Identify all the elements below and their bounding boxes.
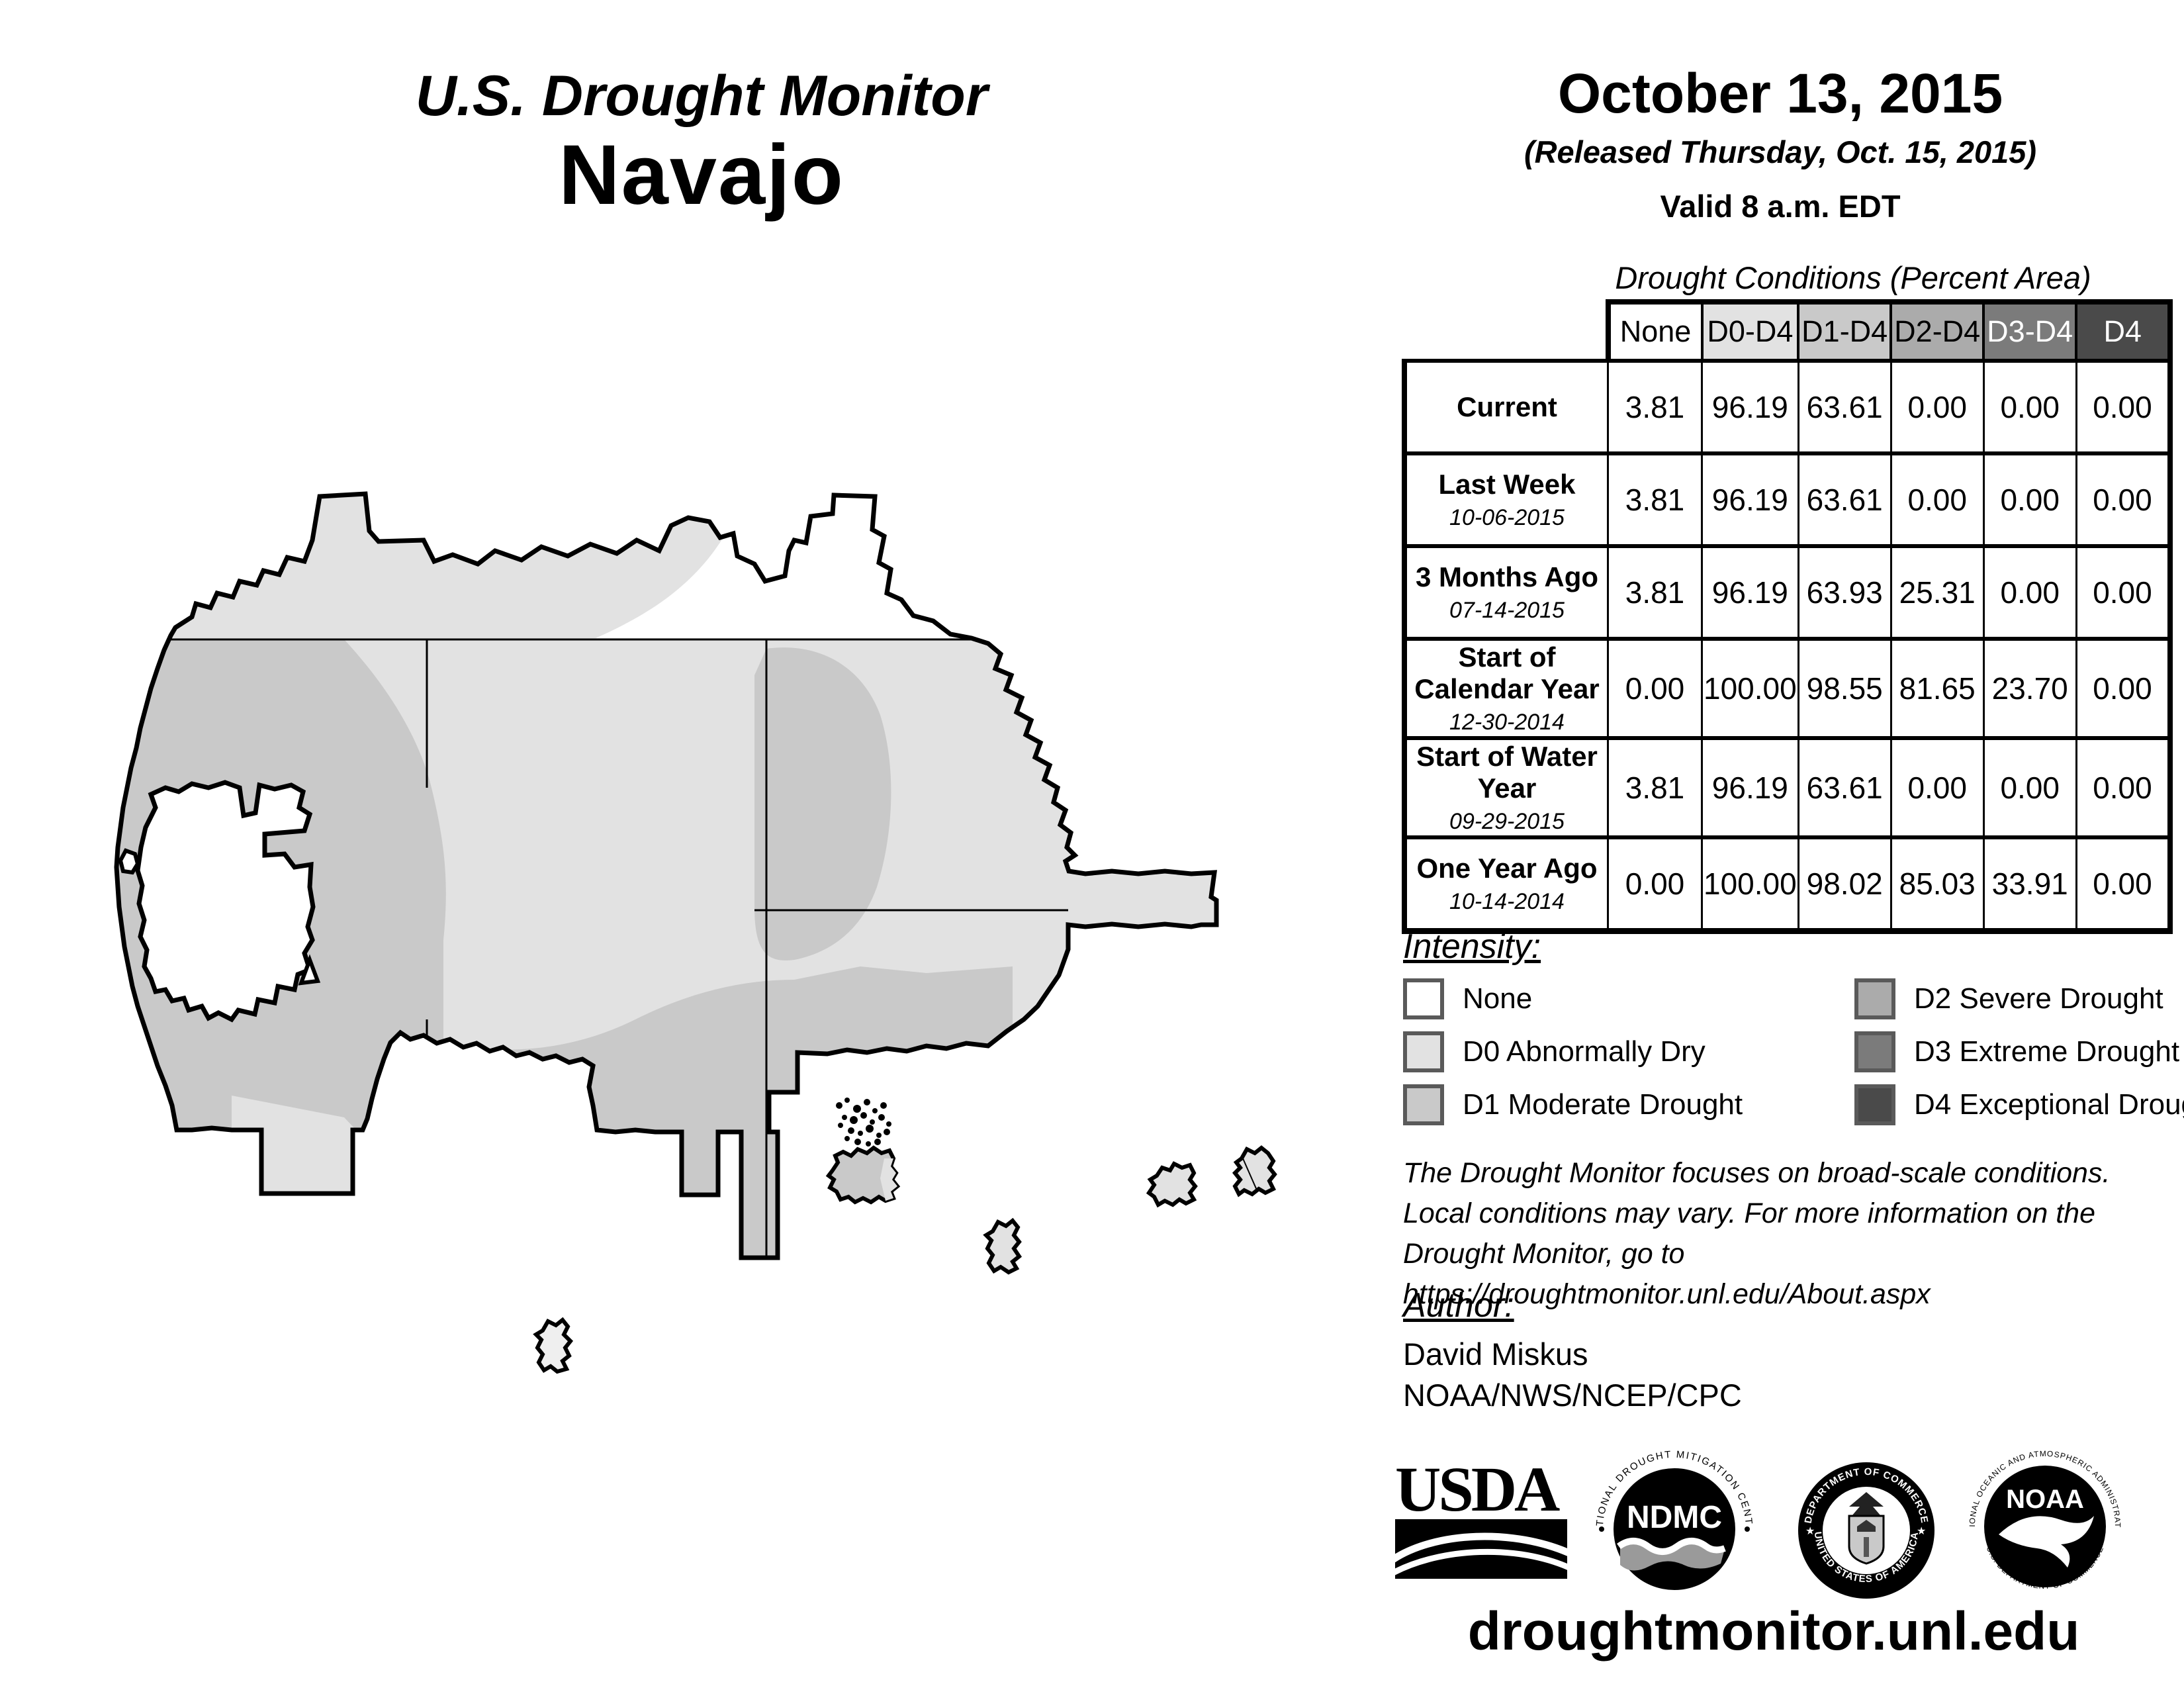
author-heading: Author: xyxy=(1403,1286,1514,1325)
valid-time: Valid 8 a.m. EDT xyxy=(1410,189,2151,224)
ndmc-center-text: NDMC xyxy=(1627,1500,1722,1535)
value-cell: 85.03 xyxy=(1891,837,1983,931)
value-cell: 3.81 xyxy=(1608,738,1702,837)
legend-swatch xyxy=(1854,1084,1895,1125)
legend-swatch xyxy=(1854,1031,1895,1072)
table-row: 3 Months Ago07-14-20153.8196.1963.9325.3… xyxy=(1404,546,2170,639)
legend-swatch xyxy=(1854,978,1895,1019)
region-title: Navajo xyxy=(165,129,1238,222)
value-cell: 0.00 xyxy=(2076,837,2170,931)
row-label: 3 Months Ago07-14-2015 xyxy=(1404,546,1608,639)
small-white-enclave xyxy=(120,851,138,872)
value-cell: 3.81 xyxy=(1608,546,1702,639)
value-cell: 100.00 xyxy=(1702,639,1799,738)
legend-swatch xyxy=(1403,1031,1444,1072)
commerce-lighthouse xyxy=(1864,1537,1869,1557)
value-cell: 0.00 xyxy=(1608,837,1702,931)
legend-label: None xyxy=(1463,982,1532,1015)
table-row: Start of Water Year09-29-20153.8196.1963… xyxy=(1404,738,2170,837)
legend-swatch xyxy=(1403,978,1444,1019)
east-parcel-2 xyxy=(1235,1148,1275,1194)
legend-item: D3 Extreme Drought xyxy=(1854,1031,2184,1072)
released-date: (Released Thursday, Oct. 15, 2015) xyxy=(1410,134,2151,170)
row-label: Start of Calendar Year12-30-2014 xyxy=(1404,639,1608,738)
value-cell: 96.19 xyxy=(1702,738,1799,837)
table-row: One Year Ago10-14-20140.00100.0098.0285.… xyxy=(1404,837,2170,931)
value-cell: 0.00 xyxy=(2076,361,2170,453)
value-cell: 0.00 xyxy=(1983,453,2076,546)
value-cell: 100.00 xyxy=(1702,837,1799,931)
value-cell: 0.00 xyxy=(2076,639,2170,738)
drought-conditions-table-wrap: NoneD0-D4D1-D4D2-D4D3-D4D4Current3.8196.… xyxy=(1402,299,2173,934)
value-cell: 0.00 xyxy=(2076,453,2170,546)
legend-label: D3 Extreme Drought xyxy=(1914,1035,2179,1068)
disclaimer: The Drought Monitor focuses on broad-sca… xyxy=(1403,1153,2184,1315)
table-row: Current3.8196.1963.610.000.000.00 xyxy=(1404,361,2170,453)
column-header-d4: D4 xyxy=(2076,302,2170,361)
ramah-dot-cluster xyxy=(836,1098,891,1147)
usda-logo-text: USDA xyxy=(1395,1460,1567,1519)
row-label: Last Week10-06-2015 xyxy=(1404,453,1608,546)
value-cell: 81.65 xyxy=(1891,639,1983,738)
author-org: NOAA/NWS/NCEP/CPC xyxy=(1403,1377,1742,1413)
value-cell: 33.91 xyxy=(1983,837,2076,931)
value-cell: 96.19 xyxy=(1702,546,1799,639)
drought-table: NoneD0-D4D1-D4D2-D4D3-D4D4Current3.8196.… xyxy=(1402,299,2173,934)
table-corner xyxy=(1404,302,1608,361)
disclaimer-line: The Drought Monitor focuses on broad-sca… xyxy=(1403,1153,2184,1194)
legend-column-2: D2 Severe DroughtD3 Extreme DroughtD4 Ex… xyxy=(1854,978,2184,1137)
value-cell: 25.31 xyxy=(1891,546,1983,639)
commerce-star-right: ★ xyxy=(1917,1526,1926,1537)
value-cell: 63.61 xyxy=(1798,738,1891,837)
title-block: U.S. Drought Monitor Navajo xyxy=(165,63,1238,222)
noaa-center-text: NOAA xyxy=(2006,1485,2084,1514)
value-cell: 3.81 xyxy=(1608,361,1702,453)
drought-monitor-report: U.S. Drought Monitor Navajo October 13, … xyxy=(0,0,2184,1688)
column-header-none: None xyxy=(1608,302,1702,361)
column-header-d0-d4: D0-D4 xyxy=(1702,302,1799,361)
value-cell: 0.00 xyxy=(1608,639,1702,738)
ndmc-logo: NATIONAL DROUGHT MITIGATION CENTER UNIVE… xyxy=(1588,1443,1760,1615)
legend-item: D0 Abnormally Dry xyxy=(1403,1031,1774,1072)
commerce-star-left: ★ xyxy=(1805,1526,1815,1537)
legend-item: D2 Severe Drought xyxy=(1854,978,2184,1019)
table-row: Start of Calendar Year12-30-20140.00100.… xyxy=(1404,639,2170,738)
commerce-logo: DEPARTMENT OF COMMERCE UNITED STATES OF … xyxy=(1786,1450,1947,1611)
satellite-parcels xyxy=(536,1098,1275,1372)
legend-item: D1 Moderate Drought xyxy=(1403,1084,1774,1125)
value-cell: 98.02 xyxy=(1798,837,1891,931)
legend-swatch xyxy=(1403,1084,1444,1125)
disclaimer-line: Drought Monitor, go to https://droughtmo… xyxy=(1403,1234,2184,1315)
alamo-parcel xyxy=(986,1221,1019,1272)
value-cell: 0.00 xyxy=(1983,361,2076,453)
value-cell: 0.00 xyxy=(2076,738,2170,837)
legend-label: D4 Exceptional Drought xyxy=(1914,1088,2184,1121)
date-block: October 13, 2015 (Released Thursday, Oct… xyxy=(1410,63,2151,224)
value-cell: 63.61 xyxy=(1798,453,1891,546)
value-cell: 3.81 xyxy=(1608,453,1702,546)
intensity-legend: NoneD0 Abnormally DryD1 Moderate Drought… xyxy=(1403,978,2171,1137)
east-parcel-1 xyxy=(1149,1164,1195,1205)
map-date: October 13, 2015 xyxy=(1410,63,2151,124)
value-cell: 0.00 xyxy=(1983,738,2076,837)
value-cell: 96.19 xyxy=(1702,361,1799,453)
legend-column-1: NoneD0 Abnormally DryD1 Moderate Drought xyxy=(1403,978,1774,1137)
legend-item: D4 Exceptional Drought xyxy=(1854,1084,2184,1125)
table-caption: Drought Conditions (Percent Area) xyxy=(1535,259,2171,296)
usda-swoosh-graphic xyxy=(1395,1519,1567,1579)
navajo-drought-map xyxy=(66,477,1324,1443)
usda-logo: USDA xyxy=(1395,1460,1567,1582)
column-header-d1-d4: D1-D4 xyxy=(1798,302,1891,361)
value-cell: 98.55 xyxy=(1798,639,1891,738)
row-label: One Year Ago10-14-2014 xyxy=(1404,837,1608,931)
value-cell: 0.00 xyxy=(1891,738,1983,837)
legend-label: D1 Moderate Drought xyxy=(1463,1088,1743,1121)
value-cell: 0.00 xyxy=(1891,453,1983,546)
value-cell: 0.00 xyxy=(2076,546,2170,639)
value-cell: 0.00 xyxy=(1983,546,2076,639)
disclaimer-line: Local conditions may vary. For more info… xyxy=(1403,1194,2184,1234)
legend-item: None xyxy=(1403,978,1774,1019)
table-row: Last Week10-06-20153.8196.1963.610.000.0… xyxy=(1404,453,2170,546)
noaa-logo: NATIONAL OCEANIC AND ATMOSPHERIC ADMINIS… xyxy=(1960,1442,2130,1611)
row-label: Current xyxy=(1404,361,1608,453)
author-name: David Miskus xyxy=(1403,1336,1588,1372)
column-header-d2-d4: D2-D4 xyxy=(1891,302,1983,361)
south-small-parcel xyxy=(536,1320,570,1372)
value-cell: 63.61 xyxy=(1798,361,1891,453)
footer-url: droughtmonitor.unl.edu xyxy=(1343,1601,2184,1663)
value-cell: 96.19 xyxy=(1702,453,1799,546)
legend-label: D2 Severe Drought xyxy=(1914,982,2163,1015)
legend-label: D0 Abnormally Dry xyxy=(1463,1035,1706,1068)
value-cell: 23.70 xyxy=(1983,639,2076,738)
intensity-heading: Intensity: xyxy=(1403,927,1541,966)
column-header-d3-d4: D3-D4 xyxy=(1983,302,2076,361)
report-title: U.S. Drought Monitor xyxy=(165,63,1238,129)
hopi-enclave-hole xyxy=(138,782,313,1019)
value-cell: 0.00 xyxy=(1891,361,1983,453)
row-label: Start of Water Year09-29-2015 xyxy=(1404,738,1608,837)
value-cell: 63.93 xyxy=(1798,546,1891,639)
